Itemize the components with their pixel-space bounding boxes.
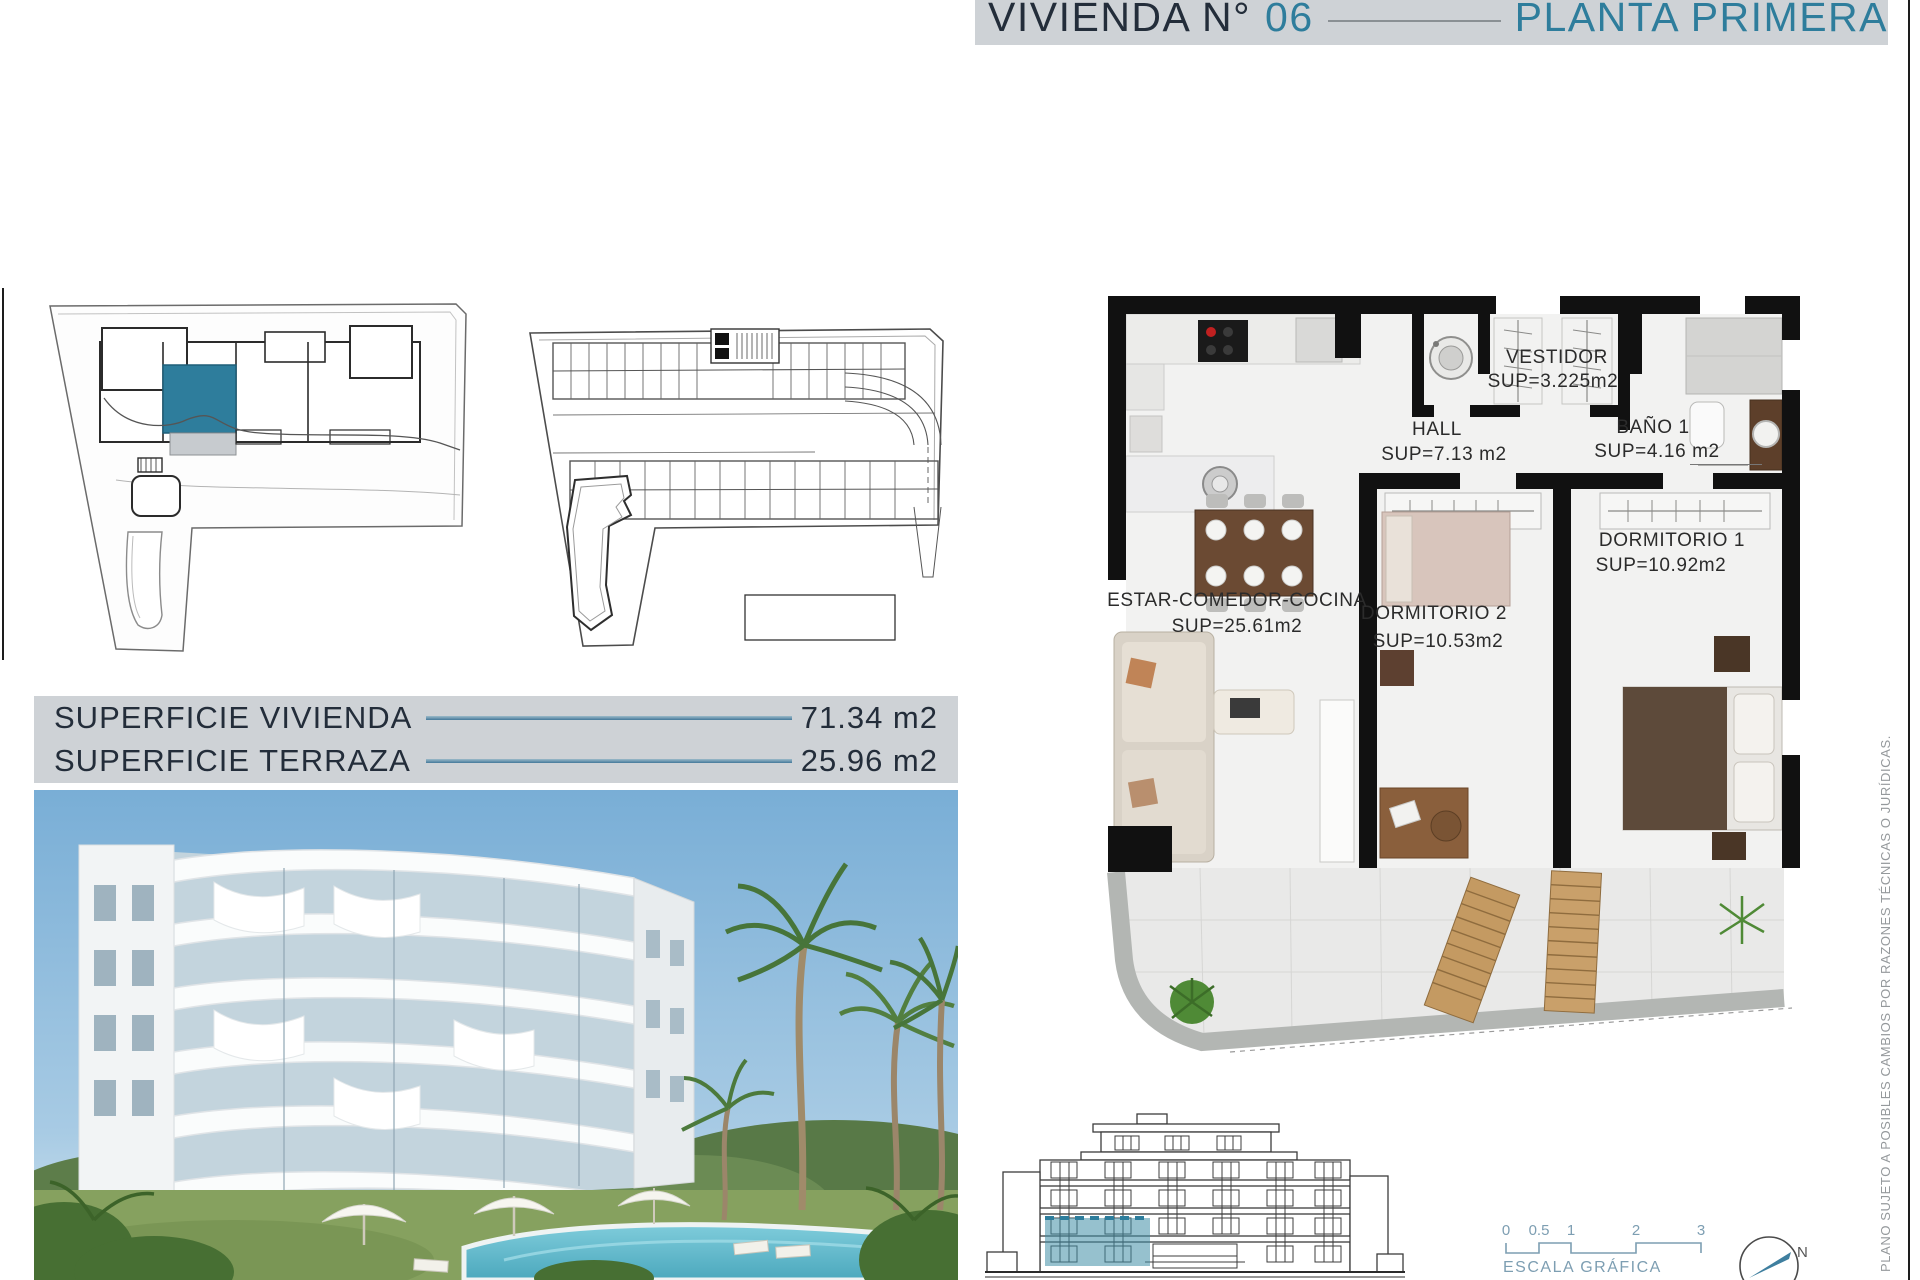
surface-row-terraza: SUPERFICIE TERRAZA 25.96 m2: [34, 743, 958, 780]
compass-north-label: N: [1797, 1244, 1808, 1261]
room-label-dormitorio2: DORMITORIO 2: [1361, 603, 1507, 625]
laundry-washer: [1430, 337, 1472, 379]
sheet-right-border: [1908, 0, 1910, 1280]
room-area-estar: SUP=25.61m2: [1172, 616, 1303, 638]
scale-tick: 0.5: [1529, 1222, 1550, 1239]
compass-circle: [1740, 1237, 1798, 1280]
banyo-leader-line: [1690, 464, 1762, 465]
header-bar: VIVIENDA N° 06 PLANTA PRIMERA: [975, 0, 1888, 45]
surface-table: SUPERFICIE VIVIENDA 71.34 m2 SUPERFICIE …: [34, 696, 958, 783]
room-area-banyo1: SUP=4.16 m2: [1594, 441, 1719, 463]
surface-label: SUPERFICIE TERRAZA: [34, 743, 426, 779]
building-render-photo: [34, 790, 958, 1280]
leader-line: [426, 759, 792, 763]
leader-line: [426, 716, 792, 720]
header-title-prefix: VIVIENDA N°: [988, 0, 1251, 45]
surface-value: 71.34 m2: [792, 700, 958, 736]
header-title-suffix: PLANTA PRIMERA: [1515, 0, 1888, 45]
tv-sideboard: [1320, 700, 1354, 862]
scale-bar-graphic: [1500, 1239, 1740, 1259]
sheet-left-border: [2, 288, 4, 660]
room-label-vestidor: VESTIDOR: [1506, 347, 1608, 369]
surface-label: SUPERFICIE VIVIENDA: [34, 700, 426, 736]
surface-value: 25.96 m2: [792, 743, 958, 779]
scale-tick: 2: [1632, 1222, 1640, 1239]
room-area-vestidor: SUP=3.225m2: [1488, 371, 1619, 393]
plan-sheet-page: VIVIENDA N° 06 PLANTA PRIMERA: [0, 0, 1920, 1280]
site-plan-garage: [515, 285, 985, 690]
room-label-hall: HALL: [1412, 419, 1462, 441]
compass-needle-icon: [1749, 1252, 1791, 1278]
building-elevation-drawing: [985, 1112, 1405, 1280]
room-label-banyo1: BAÑO 1: [1616, 417, 1689, 439]
scale-tick: 0: [1502, 1222, 1510, 1239]
room-area-dormitorio2: SUP=10.53m2: [1373, 631, 1504, 653]
room-area-hall: SUP=7.13 m2: [1381, 444, 1506, 466]
header-unit-number: 06: [1265, 0, 1314, 45]
header-dash-line: [1328, 20, 1501, 22]
site-plan-location: [20, 280, 500, 680]
scale-bar: 0 0.5 1 2 3 ESCALA GRÁFICA: [1500, 1222, 1740, 1280]
room-label-estar: ESTAR-COMEDOR-COCINA: [1107, 590, 1367, 612]
floor-plan-drawing: [1080, 260, 1820, 1060]
room-label-dormitorio1: DORMITORIO 1: [1599, 530, 1745, 552]
elevation-unit-highlight: [1045, 1218, 1150, 1266]
building-tower: [79, 845, 174, 1195]
disclaimer-text: PLANO SUJETO A POSIBLES CAMBIOS POR RAZO…: [1878, 842, 1894, 1272]
scale-tick: 1: [1567, 1222, 1575, 1239]
scale-tick: 3: [1697, 1222, 1705, 1239]
room-area-dormitorio1: SUP=10.92m2: [1596, 555, 1727, 577]
scale-bar-label: ESCALA GRÁFICA: [1503, 1259, 1662, 1277]
north-compass: N: [1733, 1226, 1825, 1280]
highlighted-unit-fill: [163, 365, 236, 433]
surface-row-vivienda: SUPERFICIE VIVIENDA 71.34 m2: [34, 700, 958, 737]
